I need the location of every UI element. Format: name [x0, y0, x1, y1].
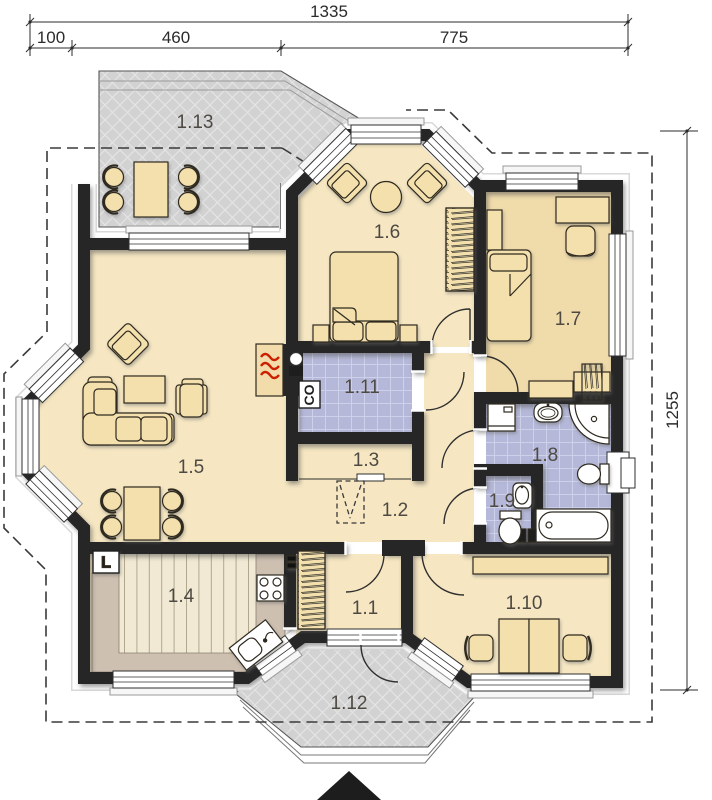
svg-text:1335: 1335 — [310, 2, 348, 21]
svg-text:1.3: 1.3 — [353, 450, 379, 471]
svg-text:1.2: 1.2 — [382, 500, 408, 521]
svg-text:1.4: 1.4 — [168, 586, 195, 607]
svg-text:1.12: 1.12 — [331, 693, 368, 714]
svg-text:775: 775 — [440, 28, 468, 47]
svg-text:1.1: 1.1 — [352, 598, 378, 619]
svg-text:1.5: 1.5 — [178, 457, 204, 478]
svg-text:1.6: 1.6 — [374, 222, 400, 243]
svg-text:1.9: 1.9 — [489, 491, 515, 512]
svg-text:1.11: 1.11 — [344, 377, 380, 398]
svg-text:460: 460 — [162, 28, 190, 47]
svg-text:1.7: 1.7 — [555, 309, 581, 330]
svg-text:1255: 1255 — [663, 391, 682, 429]
svg-text:CO: CO — [301, 384, 317, 405]
svg-text:L: L — [101, 555, 111, 572]
svg-text:1.10: 1.10 — [506, 593, 543, 614]
svg-text:1.13: 1.13 — [177, 112, 214, 133]
svg-text:1.8: 1.8 — [532, 445, 558, 466]
svg-text:100: 100 — [37, 28, 65, 47]
